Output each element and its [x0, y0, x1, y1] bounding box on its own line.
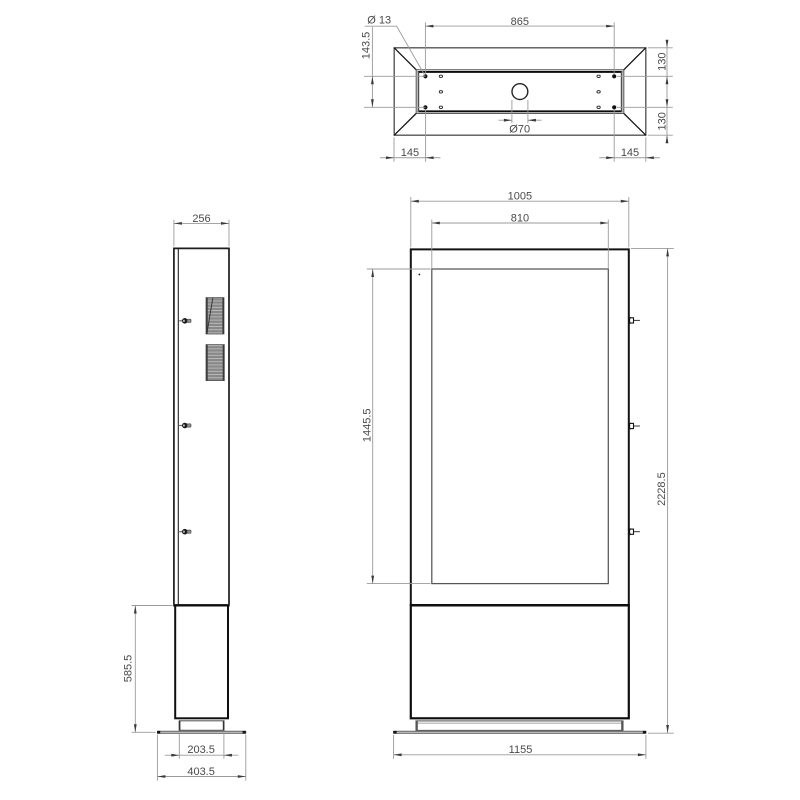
- svg-text:256: 256: [192, 213, 210, 225]
- svg-text:130: 130: [656, 53, 668, 71]
- svg-text:203.5: 203.5: [187, 744, 215, 756]
- svg-text:810: 810: [511, 213, 529, 225]
- svg-text:1445.5: 1445.5: [362, 408, 374, 442]
- svg-text:585.5: 585.5: [123, 655, 135, 683]
- svg-text:Ø70: Ø70: [509, 123, 530, 135]
- svg-text:145: 145: [621, 147, 639, 159]
- svg-text:1005: 1005: [508, 191, 532, 203]
- svg-text:865: 865: [511, 16, 529, 28]
- svg-text:145: 145: [401, 147, 419, 159]
- svg-text:403.5: 403.5: [187, 766, 215, 778]
- svg-text:1155: 1155: [509, 744, 533, 756]
- svg-text:143.5: 143.5: [361, 32, 373, 60]
- svg-text:2228.5: 2228.5: [656, 472, 668, 506]
- svg-text:Ø 13: Ø 13: [367, 15, 391, 27]
- svg-text:130: 130: [656, 112, 668, 130]
